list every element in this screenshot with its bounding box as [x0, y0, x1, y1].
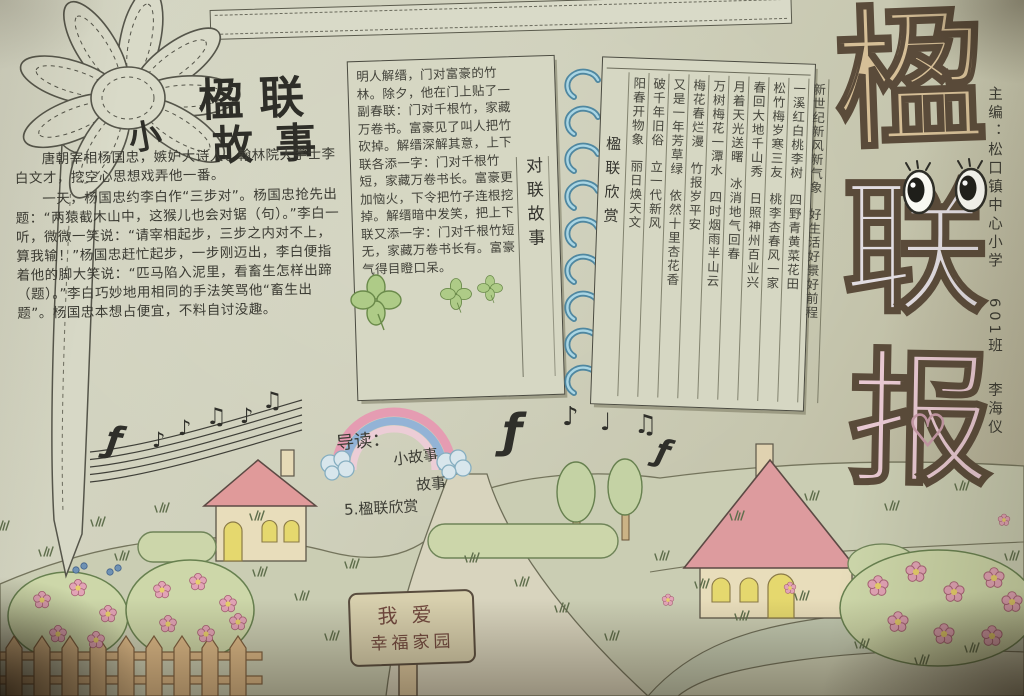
- music-note-icon: ♫: [206, 404, 227, 430]
- edition-author: 李海仪: [986, 382, 1002, 438]
- right-house-door: [768, 574, 794, 618]
- couplet-columns: 阳春开物象丽日焕天文 破千年旧俗立一代新风 又是一年芳草绿依然十里杏花香 梅花春…: [617, 72, 809, 402]
- guide-item: 5.楹联欣赏: [344, 495, 419, 520]
- music-note-icon: ♪: [562, 402, 579, 432]
- music-note-icon: ♫: [634, 410, 657, 440]
- guide-heading: 导读：: [335, 425, 391, 456]
- edition-class: 601班: [986, 298, 1002, 356]
- left-house-window: [284, 521, 299, 543]
- notebook-story-text: 明人解缙，门对富豪的竹林。除夕，他在门上贴了一副春联：门对千根竹，家藏万卷书。富…: [356, 63, 524, 394]
- edition-caption: 主编：松口镇中心小学 601班 李海仪: [984, 86, 1005, 526]
- masthead-char-ying: 楹: [831, 1, 988, 158]
- music-note-icon: ♫: [262, 388, 283, 414]
- story-text-block: 唐朝宰相杨国忠，嫉妒大诗人、翰林院大学士李白文才，挖空心思想戏弄他一番。 一天，…: [14, 145, 343, 326]
- notebook-left-page: 明人解缙，门对富豪的竹林。除夕，他在门上贴了一副春联：门对千根竹，家藏万卷书。富…: [347, 55, 566, 401]
- right-house-window: [740, 578, 758, 602]
- cartoon-eyes-icon: [894, 158, 998, 220]
- music-note-icon: ♪: [178, 416, 191, 440]
- story-paragraph: 一天，杨国忠约李白作“三步对”。杨国忠抢先出题：“两猿截木山中，这猴儿也会对锯（…: [15, 185, 343, 324]
- right-house-window: [712, 578, 730, 602]
- handmade-newspaper-photo: 小 楹联 故事 唐朝宰相杨国忠，嫉妒大诗人、翰林院大学士李白文才，挖空心思想戏弄…: [0, 0, 1024, 696]
- sign-line1: 我爱: [350, 597, 473, 630]
- clover-icons: [338, 262, 528, 332]
- music-note-icon: ♪: [152, 428, 165, 452]
- heart-icon: ♡: [908, 406, 947, 457]
- music-note-icon: ♪: [240, 404, 253, 428]
- edition-publisher: 主编：松口镇中心小学: [986, 86, 1002, 271]
- story-paragraph: 唐朝宰相杨国忠，嫉妒大诗人、翰林院大学士李白文才，挖空心思想戏弄他一番。: [14, 145, 341, 189]
- guide-item: 故事: [415, 472, 447, 496]
- treble-clef-icon: ƒ: [502, 404, 522, 458]
- hedge: [428, 524, 618, 558]
- flower-bush: [840, 550, 1024, 666]
- music-note-icon: ♩: [600, 408, 611, 436]
- sign-line2: 幸福家园: [351, 626, 474, 655]
- sign-board: 我爱 幸福家园: [348, 589, 477, 667]
- notebook-right-page: 楹联欣赏 阳春开物象丽日焕天文 破千年旧俗立一代新风 又是一年芳草绿依然十里杏花…: [590, 56, 816, 411]
